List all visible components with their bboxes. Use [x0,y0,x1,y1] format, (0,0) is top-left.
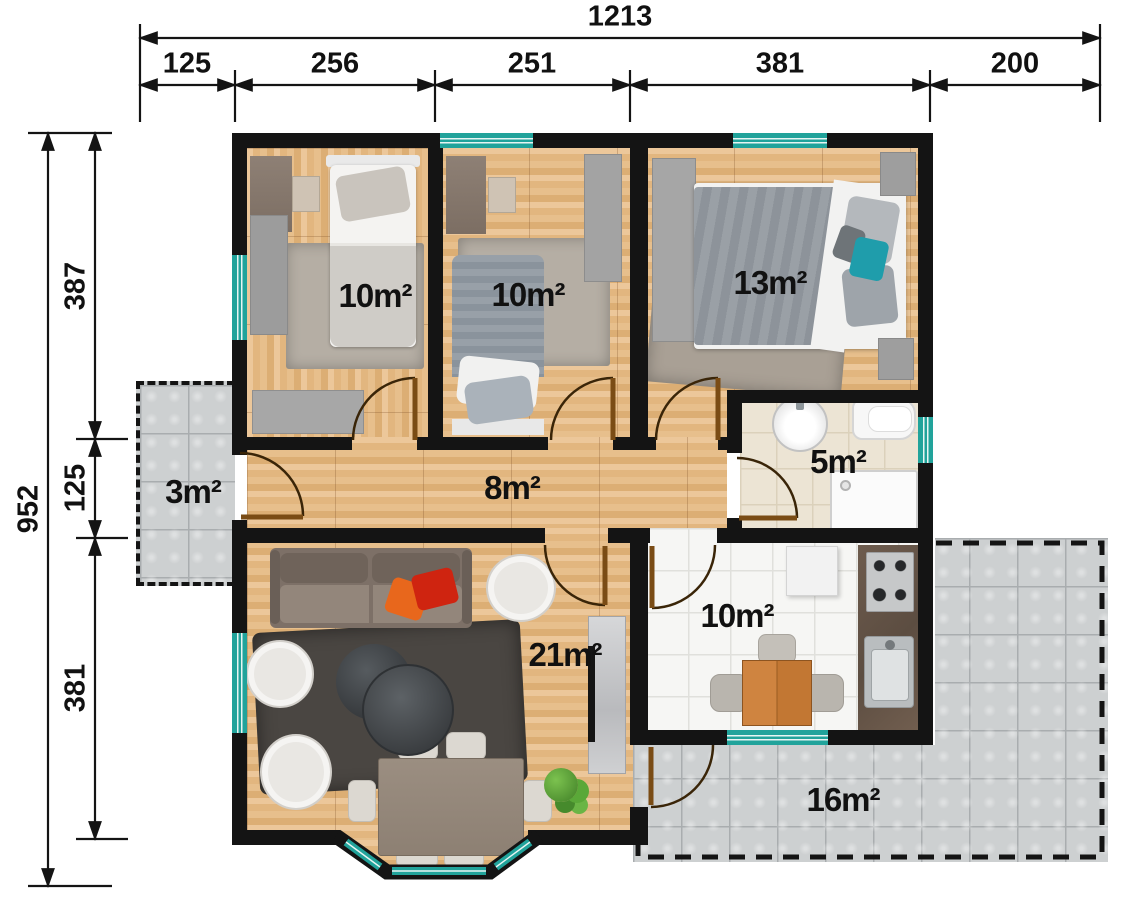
plant [544,768,578,802]
sofa-armrest [462,550,472,624]
dim-top-segment: 200 [991,48,1039,81]
wall [727,390,933,403]
room-label-kitchen: 10m² [700,597,773,635]
armchair [260,734,332,810]
wall [648,437,656,450]
room-label-living: 21m² [528,636,601,674]
sofa-armrest [270,550,280,624]
wall [717,528,933,543]
nightstand [880,152,916,196]
sofa-back-cushion [280,553,368,583]
room-label-bedroom3: 13m² [733,264,806,302]
nightstand [292,176,320,212]
wardrobe [584,154,622,282]
wall [232,133,933,148]
wall [232,340,247,455]
wall [630,807,648,845]
faucet-icon [885,640,895,650]
room-label-bathroom: 5m² [810,443,866,481]
wall [232,133,247,255]
dim-top-segment: 381 [756,48,804,81]
nightstand [878,338,914,380]
wall [232,520,247,633]
armchair [486,554,556,622]
toilet [852,398,916,440]
shower-drain-icon [840,480,851,491]
dim-top-segment: 256 [311,48,359,81]
coffee-table [362,664,454,756]
nightstand [488,177,516,213]
window-bedroom3-top [733,133,827,148]
dining-chair [348,780,376,822]
toilet-bowl [868,406,912,432]
kitchen-sink [864,636,914,708]
stove [866,552,914,612]
room-label-porch: 3m² [165,473,221,511]
dim-left-segment: 387 [60,262,93,310]
bed-pillow [463,375,534,426]
dim-top-segment: 125 [163,48,211,81]
wall [613,437,648,450]
room-label-bedroom2: 10m² [491,276,564,314]
wall [443,437,548,450]
armchair [246,640,314,708]
wall [428,148,443,437]
dining-chair [446,732,486,760]
wall [232,830,340,845]
dim-top-segment: 251 [508,48,556,81]
kitchen-chair [710,674,744,712]
room-label-terrace: 16m² [806,781,879,819]
room-label-hallway: 8m² [484,469,540,507]
window-kitchen-bottom [727,730,828,745]
sink-basin [871,649,909,701]
dining-table [378,758,524,856]
dim-left-segment: 381 [60,664,93,712]
wall [417,437,443,450]
dim-total-height: 952 [13,485,46,533]
dim-total-width: 1213 [588,1,653,34]
wardrobe [652,158,696,342]
dim-left-segment: 125 [60,464,93,512]
window-bedroom2-top [440,133,533,148]
bed-base [452,419,544,435]
window-living-left [232,633,247,733]
wall [247,528,545,543]
floor-plan: 1213 125 256 251 381 200 952 387 125 381… [0,0,1121,923]
wall [608,528,650,543]
wardrobe [446,156,486,234]
wall [247,437,352,450]
wall [727,518,742,543]
room-label-bedroom1: 10m² [338,277,411,315]
dresser [252,390,364,434]
wall [630,148,648,437]
wall [918,133,933,417]
wardrobe [250,215,288,335]
bed-single [330,155,416,347]
window-bedroom1-left [232,255,247,340]
kitchen-chair [808,674,844,712]
fridge [786,546,838,596]
wall [727,390,742,453]
wall [232,733,247,845]
wall [918,463,933,745]
window-bathroom-right [918,417,933,463]
kitchen-table [742,660,812,726]
wall [630,543,648,743]
